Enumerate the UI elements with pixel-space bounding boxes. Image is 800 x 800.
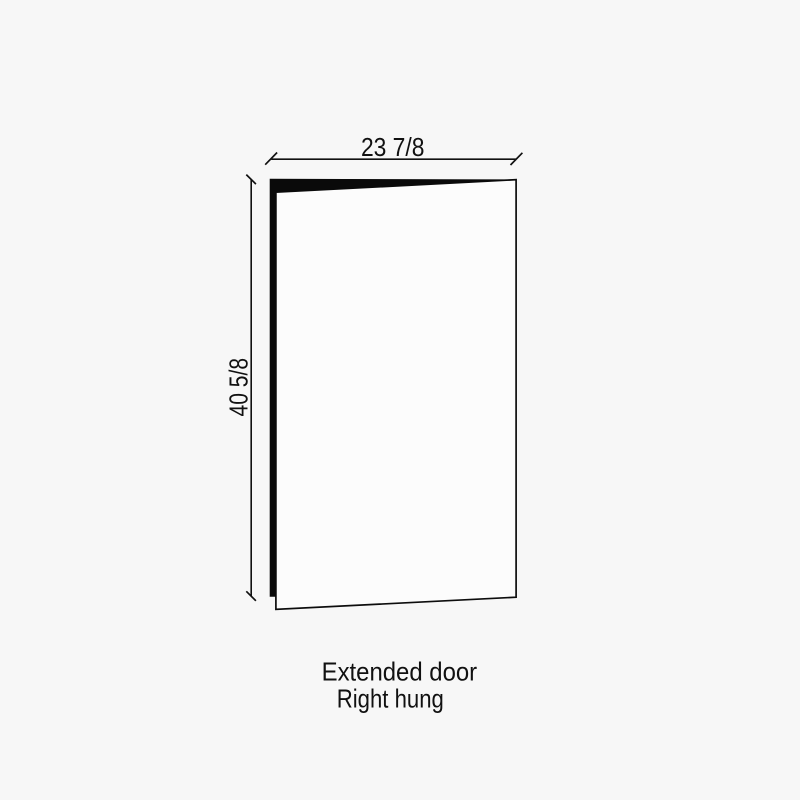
svg-text:Extended door: Extended door (322, 657, 478, 687)
svg-text:Right hung: Right hung (337, 684, 444, 714)
svg-text:40 5/8: 40 5/8 (224, 358, 254, 417)
svg-text:23 7/8: 23 7/8 (361, 132, 425, 162)
